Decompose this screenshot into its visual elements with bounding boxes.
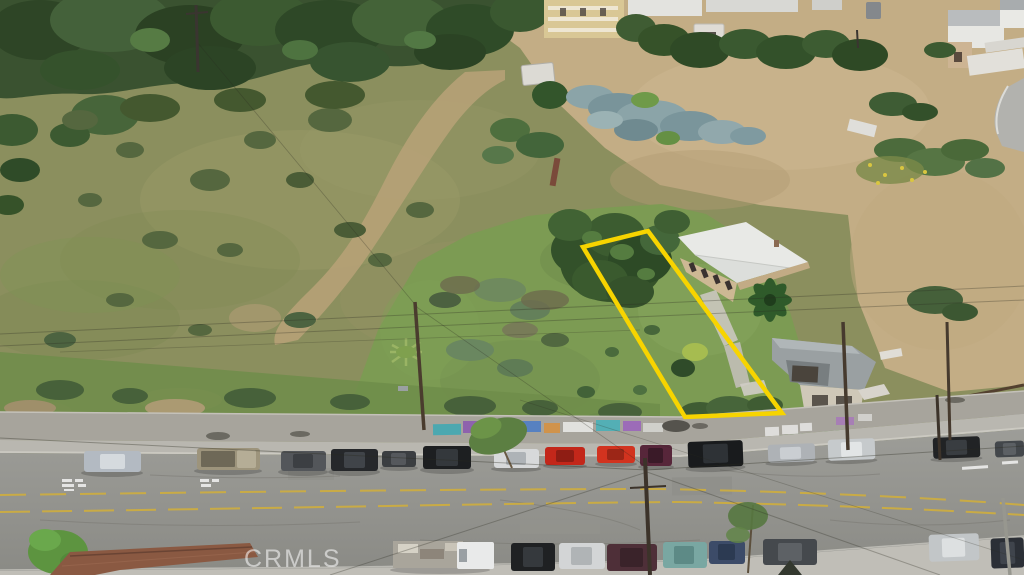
parked-car bbox=[380, 451, 418, 471]
parked-car bbox=[709, 541, 745, 564]
parked-van bbox=[866, 2, 881, 19]
parked-suv bbox=[511, 543, 555, 571]
white-building bbox=[706, 0, 798, 12]
palm-tree bbox=[748, 278, 792, 322]
palm-top bbox=[532, 81, 568, 109]
parked-minivan bbox=[663, 542, 707, 568]
small-tree bbox=[728, 502, 768, 530]
parked-car bbox=[765, 443, 818, 467]
parked-pickup-truck bbox=[194, 448, 262, 475]
aerial-photo: CRMLS bbox=[0, 0, 1024, 575]
parked-car bbox=[995, 440, 1024, 457]
flatbed-truck bbox=[390, 541, 494, 574]
chimney bbox=[774, 240, 779, 247]
crmls-watermark: CRMLS bbox=[244, 545, 342, 573]
parked-suv bbox=[685, 440, 746, 473]
dark-opening bbox=[792, 365, 819, 382]
parked-suv bbox=[825, 438, 878, 465]
parked-car bbox=[328, 449, 380, 476]
parked-car bbox=[81, 451, 143, 477]
utility-pole bbox=[196, 5, 198, 72]
parked-car bbox=[595, 446, 637, 467]
parked-suv bbox=[559, 543, 605, 569]
parked-car bbox=[278, 451, 328, 476]
white-building bbox=[628, 0, 702, 16]
